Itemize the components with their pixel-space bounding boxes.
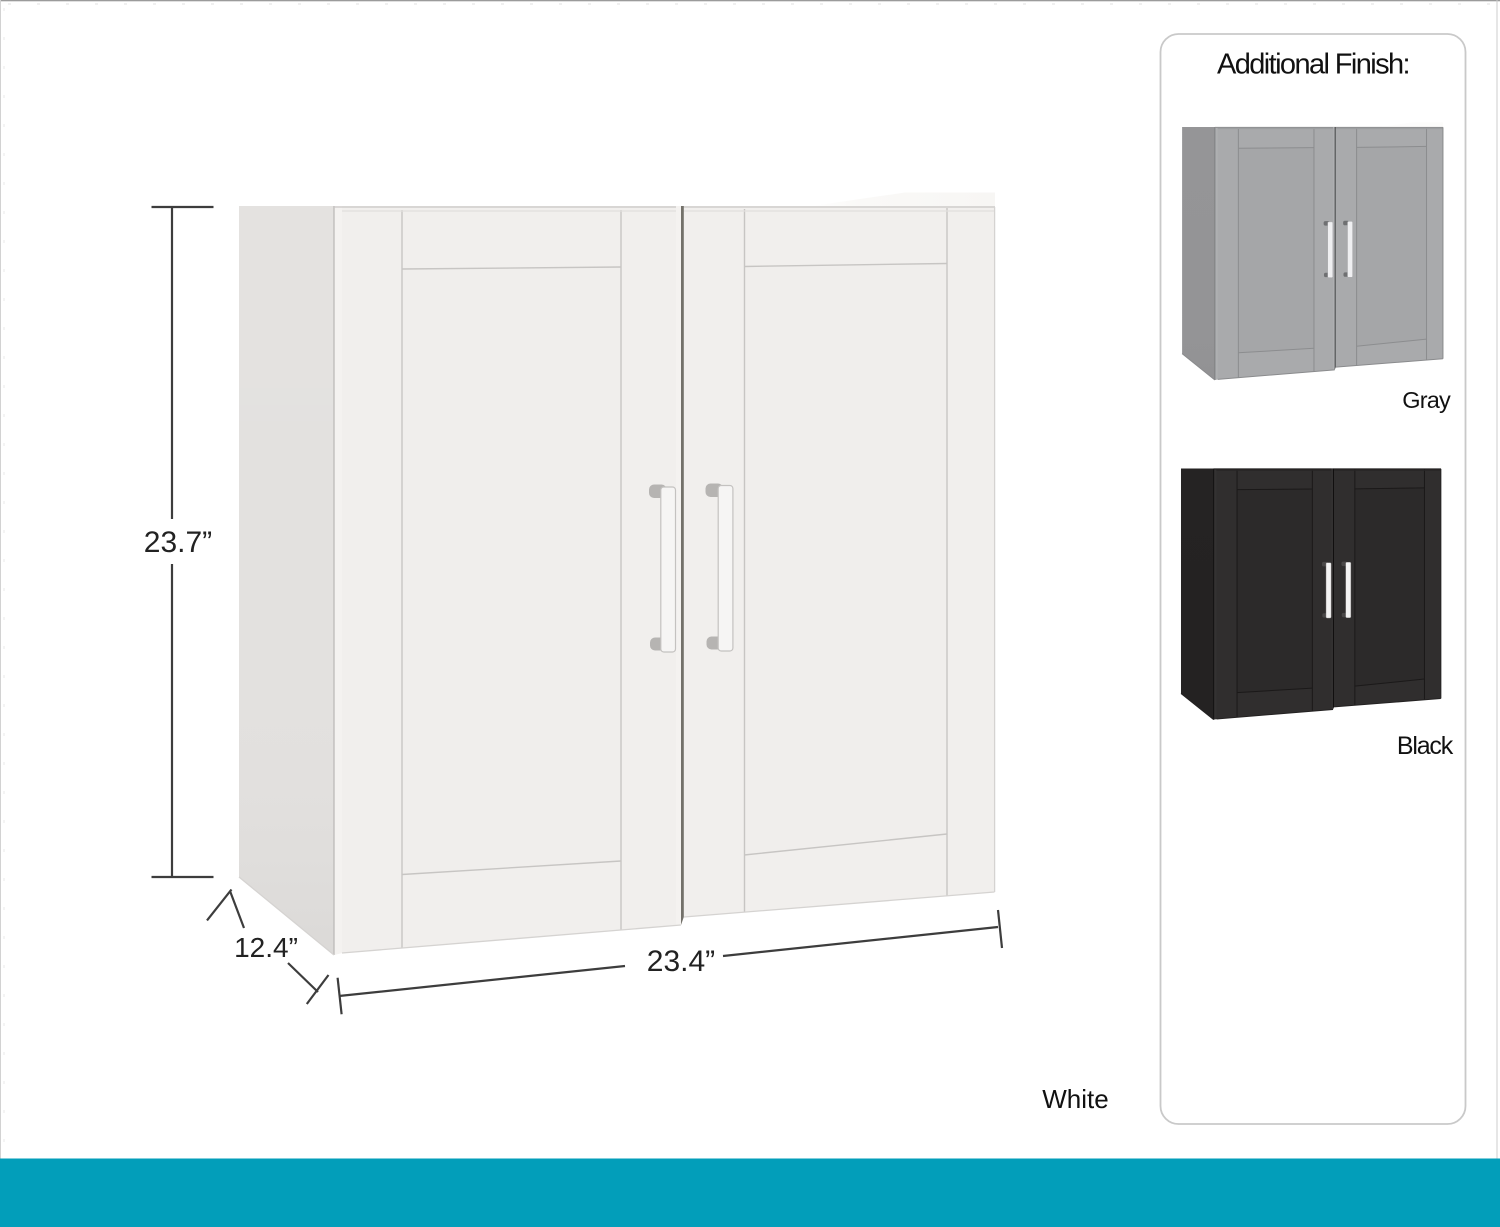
svg-text:23.7”: 23.7”: [144, 526, 212, 559]
svg-text:Black: Black: [1397, 732, 1454, 760]
svg-text:12.4”: 12.4”: [234, 932, 298, 963]
svg-text:Additional Finish:: Additional Finish:: [1217, 49, 1409, 81]
svg-text:Gray: Gray: [1402, 387, 1451, 413]
svg-text:23.4”: 23.4”: [647, 945, 715, 978]
svg-text:White: White: [1042, 1084, 1108, 1114]
